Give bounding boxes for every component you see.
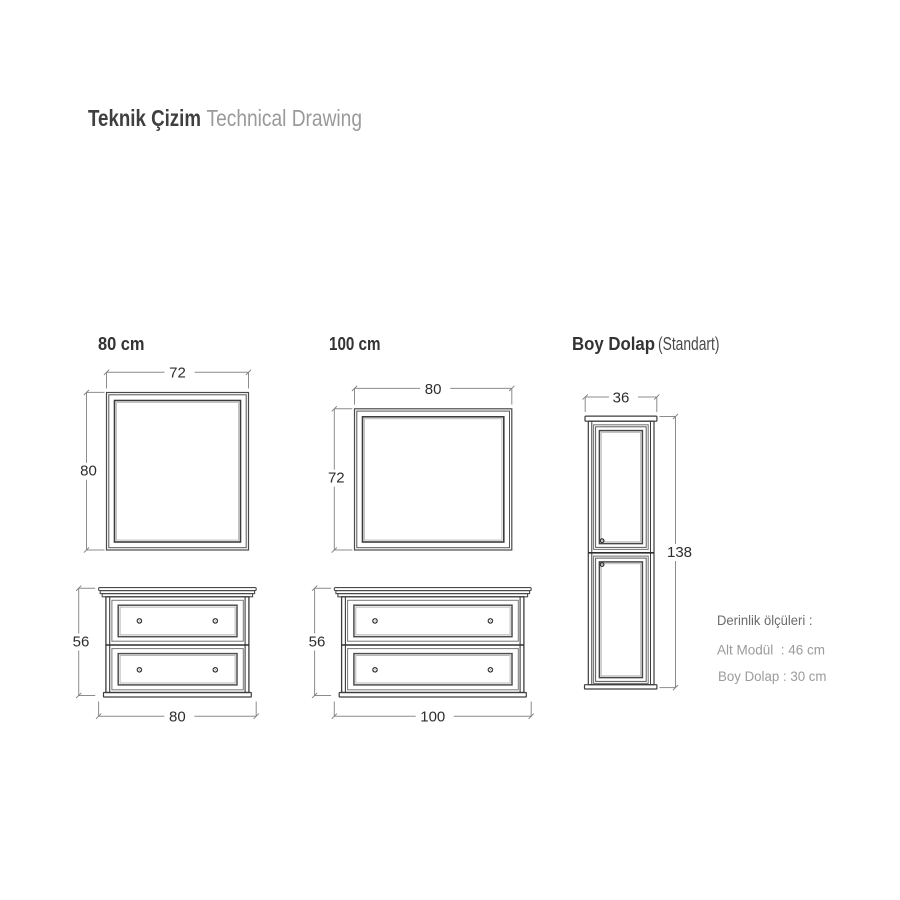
svg-text:56: 56: [309, 633, 326, 650]
svg-text:Technical Drawing: Technical Drawing: [207, 105, 363, 131]
svg-text:36: 36: [613, 389, 630, 406]
svg-text:80: 80: [425, 381, 442, 398]
svg-text:138: 138: [667, 544, 692, 561]
svg-text:72: 72: [328, 470, 345, 487]
svg-text:Teknik Çizim: Teknik Çizim: [88, 105, 201, 131]
svg-text:80 cm: 80 cm: [98, 334, 145, 354]
svg-text:Boy Dolap: Boy Dolap: [572, 334, 655, 354]
svg-text:80: 80: [169, 709, 186, 726]
svg-text:72: 72: [169, 365, 186, 382]
svg-text:100 cm: 100 cm: [329, 334, 381, 354]
svg-text:Boy Dolap : 30 cm: Boy Dolap : 30 cm: [718, 668, 827, 684]
svg-text:Derinlik ölçüleri :: Derinlik ölçüleri :: [717, 612, 813, 628]
svg-text:100: 100: [420, 709, 445, 726]
svg-text:80: 80: [80, 463, 97, 480]
svg-text:56: 56: [73, 633, 90, 650]
svg-text:(Standart): (Standart): [658, 334, 720, 354]
svg-text:Alt Modül : 46 cm: Alt Modül : 46 cm: [717, 641, 825, 657]
